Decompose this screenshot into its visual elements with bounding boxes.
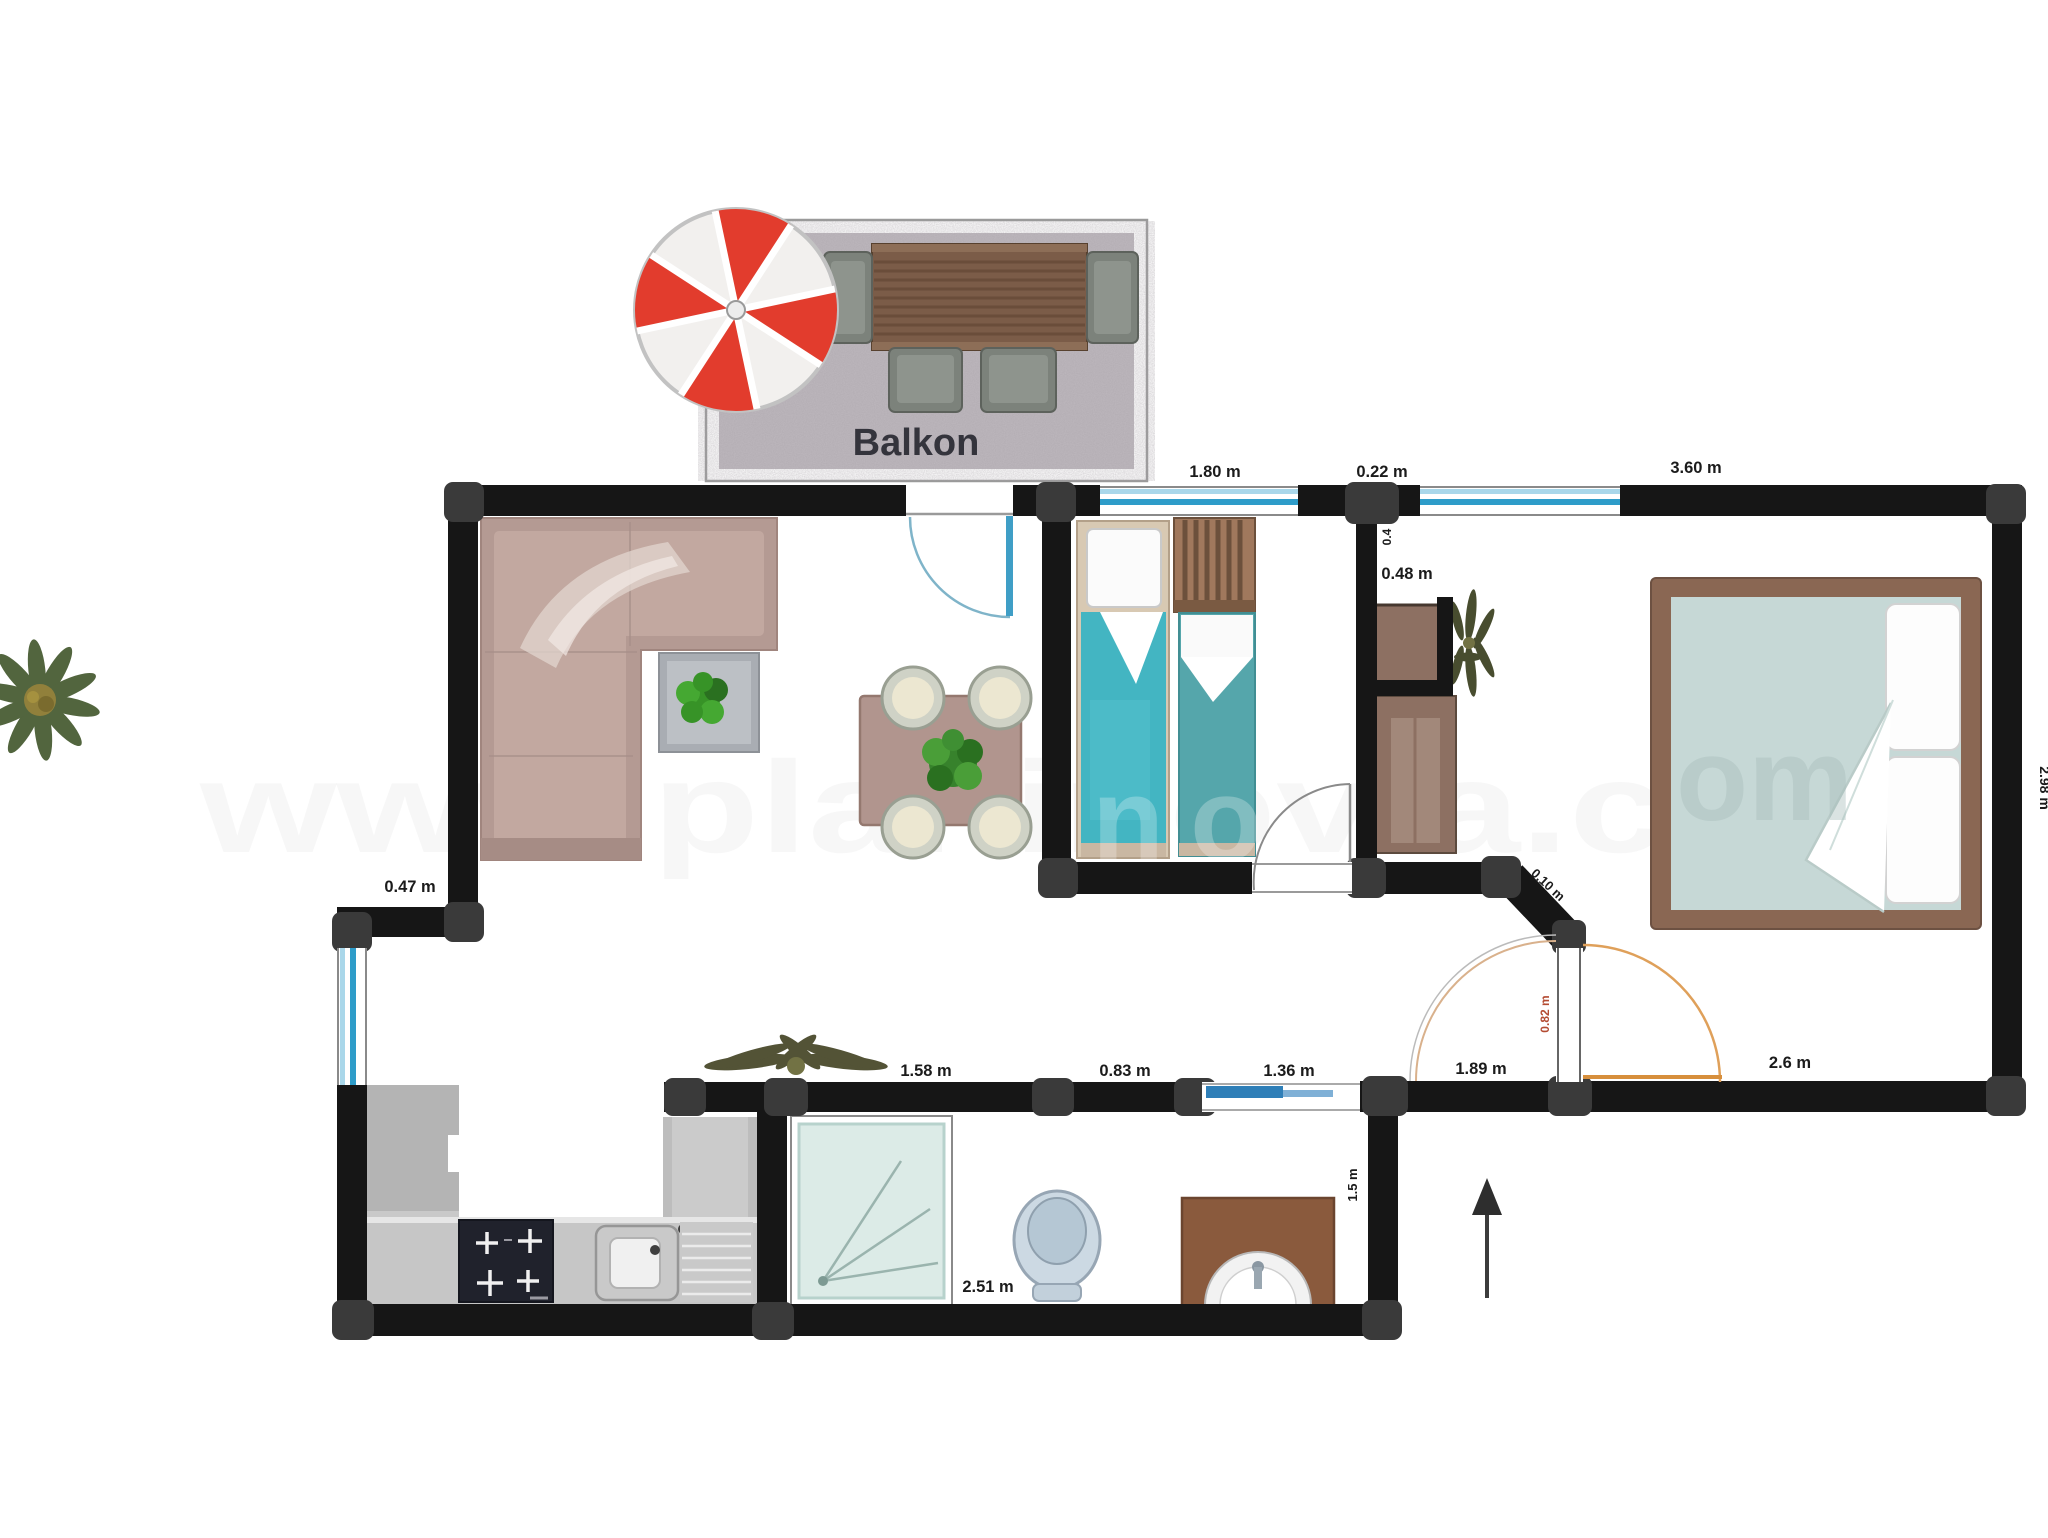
- svg-text:0.82 m: 0.82 m: [1538, 995, 1552, 1032]
- svg-text:1.89 m: 1.89 m: [1455, 1060, 1506, 1078]
- svg-text:om: om: [1676, 714, 1853, 846]
- svg-text:2.51 m: 2.51 m: [962, 1278, 1013, 1296]
- svg-text:0.47 m: 0.47 m: [384, 878, 435, 896]
- svg-text:1.36 m: 1.36 m: [1263, 1062, 1314, 1080]
- svg-text:2.98 m: 2.98 m: [2037, 766, 2048, 810]
- svg-text:3.60 m: 3.60 m: [1670, 459, 1721, 477]
- svg-text:0.22 m: 0.22 m: [1356, 463, 1407, 481]
- svg-text:Balkon: Balkon: [853, 422, 980, 464]
- svg-text:0.83 m: 0.83 m: [1099, 1062, 1150, 1080]
- svg-text:2.6 m: 2.6 m: [1769, 1054, 1811, 1072]
- svg-text:1.58 m: 1.58 m: [900, 1062, 951, 1080]
- svg-text:1.5 m: 1.5 m: [1345, 1168, 1360, 1201]
- svg-text:0.48 m: 0.48 m: [1381, 565, 1432, 583]
- svg-text:0.4: 0.4: [1380, 528, 1394, 545]
- svg-text:1.80 m: 1.80 m: [1189, 463, 1240, 481]
